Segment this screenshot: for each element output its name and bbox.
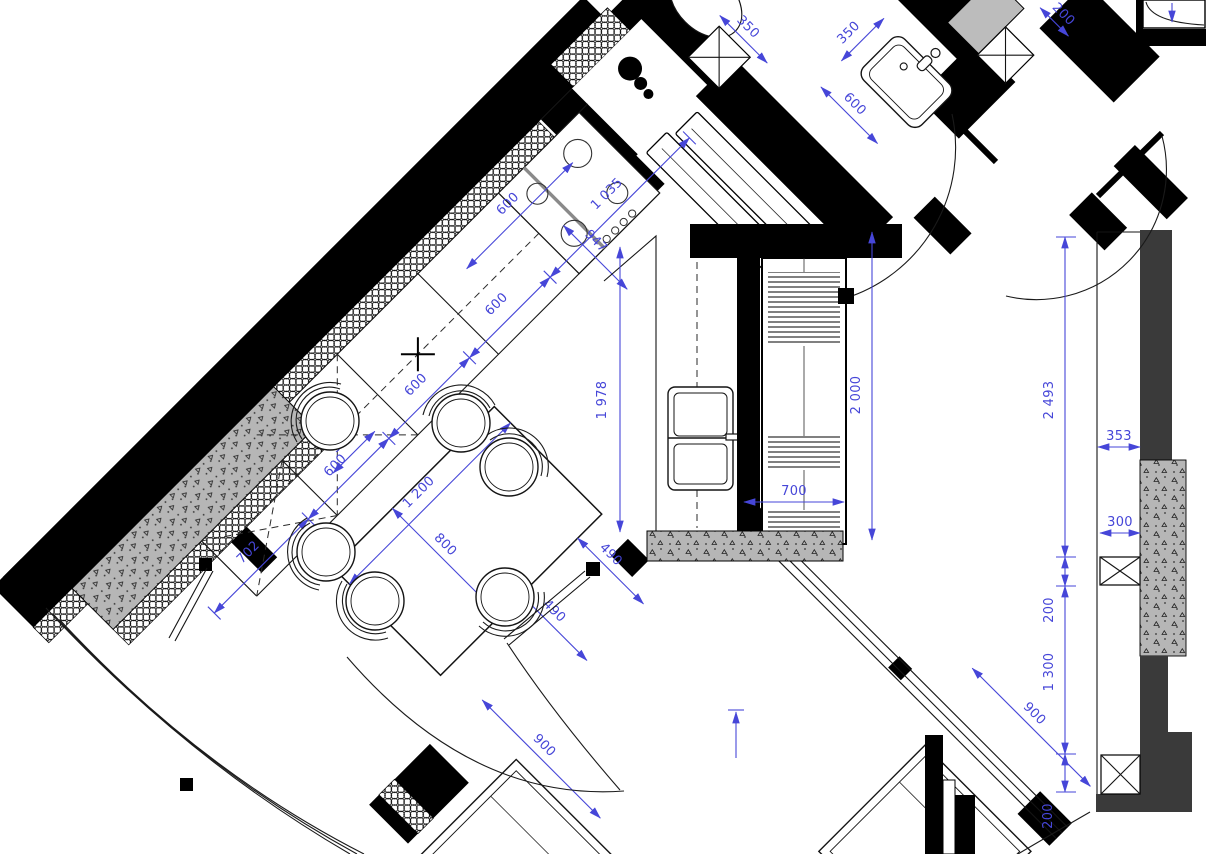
dim-label-1978: 1 978 [595,381,610,420]
louver-vent [768,510,840,532]
window-pier-x-box [1101,755,1140,794]
louver-vent [768,436,840,470]
dim-label-2000: 2 000 [849,376,864,415]
floor-plan-page: 600 1 035 600 600 600 702 947 [0,0,1206,854]
parapet-wall [647,531,843,561]
dim-label-300: 300 [1107,515,1133,530]
dim-label-200: 200 [1041,803,1056,829]
dim-label-700: 700 [781,484,807,499]
dim-label-353: 353 [1106,429,1132,444]
kitchen-side-wall [737,250,760,544]
interior-wall-top [690,224,902,258]
dim-label-1300: 1 300 [1042,653,1057,692]
top-right-alcove [1136,0,1206,46]
dim-label-2493: 2 493 [1042,381,1057,420]
insulated-wall-block [1140,460,1186,656]
tall-cabinet [762,258,846,544]
louver-vent [768,272,840,346]
dim-label-200: 200 [1042,597,1057,623]
window-pier-x-box [1100,557,1140,585]
kitchen-sink [668,387,744,490]
floor-plan-drawing: 600 1 035 600 600 600 702 947 [0,0,1206,854]
